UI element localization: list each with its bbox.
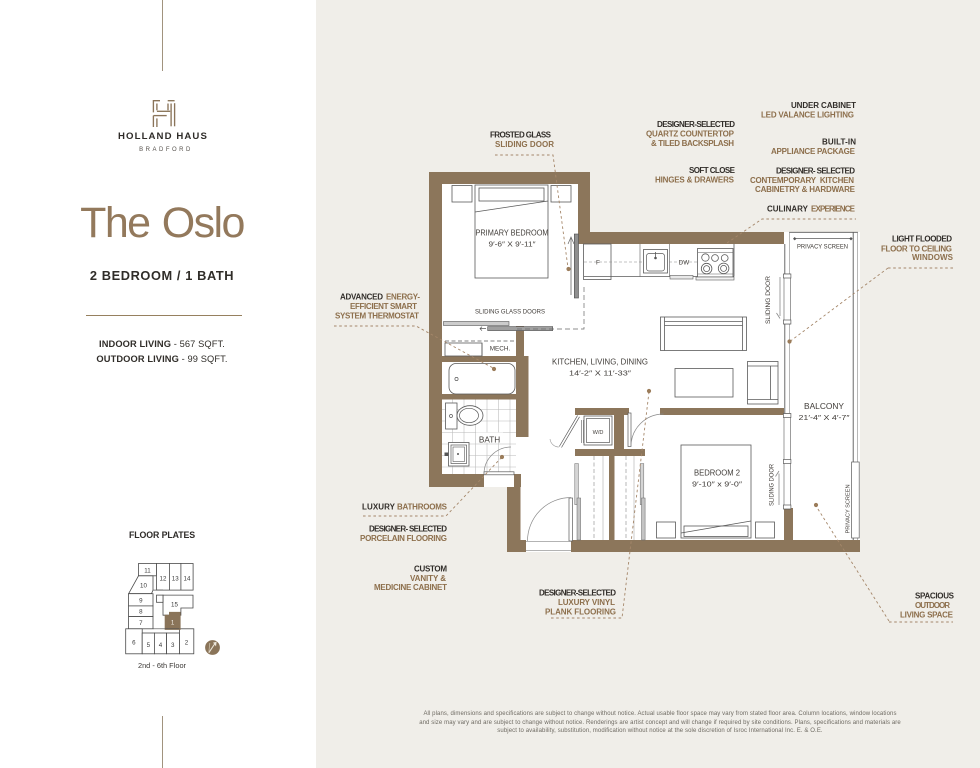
svg-text:SYSTEM THERMOSTAT: SYSTEM THERMOSTAT	[335, 312, 419, 321]
svg-text:SLIDING DOOR: SLIDING DOOR	[766, 275, 772, 324]
svg-text:FROSTED GLASS: FROSTED GLASS	[490, 131, 552, 140]
svg-text:SLIDING GLASS DOORS: SLIDING GLASS DOORS	[475, 309, 546, 316]
svg-text:5: 5	[147, 642, 151, 649]
svg-text:SLIDING DOOR: SLIDING DOOR	[770, 463, 776, 506]
svg-text:13: 13	[172, 576, 179, 583]
svg-text:LUXURY VINYL: LUXURY VINYL	[558, 598, 615, 607]
svg-text:ENERGY-: ENERGY-	[386, 293, 420, 302]
svg-text:LED VALANCE LIGHTING: LED VALANCE LIGHTING	[761, 111, 854, 120]
svg-text:LUXURY: LUXURY	[362, 503, 396, 512]
svg-text:QUARTZ COUNTERTOP: QUARTZ COUNTERTOP	[646, 130, 735, 139]
svg-text:HINGES & DRAWERS: HINGES & DRAWERS	[655, 176, 735, 185]
svg-text:OUTDOOR: OUTDOOR	[915, 601, 950, 610]
svg-text:BALCONY: BALCONY	[804, 402, 845, 411]
svg-text:CULINARY: CULINARY	[767, 205, 809, 214]
svg-text:9′-6″ X 9′-11″: 9′-6″ X 9′-11″	[489, 240, 536, 249]
svg-text:SPACIOUS: SPACIOUS	[915, 592, 955, 601]
svg-text:11: 11	[144, 567, 151, 574]
svg-text:W/D: W/D	[593, 430, 604, 436]
svg-text:KITCHEN, LIVING, DINING: KITCHEN, LIVING, DINING	[552, 358, 648, 367]
svg-text:APPLIANCE PACKAGE: APPLIANCE PACKAGE	[771, 147, 856, 156]
svg-text:4: 4	[159, 642, 163, 649]
svg-text:BATHROOMS: BATHROOMS	[397, 503, 448, 512]
svg-text:BUILT-IN: BUILT-IN	[822, 138, 856, 147]
svg-text:BATH: BATH	[479, 436, 500, 445]
svg-text:EFFICIENT SMART: EFFICIENT SMART	[350, 302, 417, 311]
svg-text:DW: DW	[679, 260, 691, 267]
svg-text:21′-4″ X 4′-7″: 21′-4″ X 4′-7″	[799, 413, 850, 422]
svg-text:14: 14	[184, 576, 191, 583]
svg-text:7: 7	[139, 620, 143, 627]
svg-text:MEDICINE CABINET: MEDICINE CABINET	[374, 583, 447, 592]
svg-text:UNDER CABINET: UNDER CABINET	[791, 101, 856, 110]
svg-text:& TILED BACKSPLASH: & TILED BACKSPLASH	[651, 139, 734, 148]
svg-text:DESIGNER-SELECTED: DESIGNER-SELECTED	[539, 589, 616, 598]
svg-text:EXPERIENCE: EXPERIENCE	[811, 205, 856, 214]
svg-text:15: 15	[171, 602, 178, 609]
svg-text:SOFT CLOSE: SOFT CLOSE	[689, 166, 736, 175]
svg-text:PRIVACY SCREEN: PRIVACY SCREEN	[797, 245, 848, 251]
svg-text:WINDOWS: WINDOWS	[912, 253, 954, 262]
svg-text:CONTEMPORARY KITCHEN: CONTEMPORARY KITCHEN	[750, 176, 854, 185]
svg-text:LIGHT FLOODED: LIGHT FLOODED	[892, 235, 952, 244]
svg-text:BEDROOM 2: BEDROOM 2	[694, 469, 740, 478]
svg-text:DESIGNER-SELECTED: DESIGNER-SELECTED	[657, 120, 735, 129]
svg-text:CABINETRY & HARDWARE: CABINETRY & HARDWARE	[755, 185, 856, 194]
svg-text:CUSTOM: CUSTOM	[414, 565, 447, 574]
svg-text:PRIMARY BEDROOM: PRIMARY BEDROOM	[476, 229, 549, 238]
svg-text:DESIGNER- SELECTED: DESIGNER- SELECTED	[776, 167, 855, 176]
svg-text:PORCELAIN FLOORING: PORCELAIN FLOORING	[360, 534, 447, 543]
svg-text:VANITY &: VANITY &	[410, 574, 446, 583]
svg-text:ADVANCED: ADVANCED	[340, 293, 383, 302]
svg-text:12: 12	[160, 576, 167, 583]
svg-text:2: 2	[185, 640, 189, 647]
svg-text:9: 9	[139, 597, 143, 604]
svg-text:6: 6	[132, 640, 136, 647]
svg-text:PRIVACY SCREEN: PRIVACY SCREEN	[846, 485, 852, 534]
svg-text:14′-2″ X 11′-33″: 14′-2″ X 11′-33″	[569, 369, 631, 378]
svg-text:LIVING SPACE: LIVING SPACE	[900, 611, 954, 620]
svg-text:MECH.: MECH.	[490, 346, 511, 353]
svg-text:PLANK FLOORING: PLANK FLOORING	[545, 608, 616, 617]
svg-text:F: F	[596, 260, 600, 267]
svg-text:3: 3	[171, 642, 175, 649]
svg-text:DESIGNER- SELECTED: DESIGNER- SELECTED	[369, 525, 447, 534]
svg-text:10: 10	[140, 583, 147, 590]
svg-text:8: 8	[139, 609, 143, 616]
svg-text:SLIDING DOOR: SLIDING DOOR	[495, 140, 554, 149]
svg-text:1: 1	[171, 620, 175, 627]
svg-text:9′-10″ x 9′-0″: 9′-10″ x 9′-0″	[692, 480, 742, 489]
